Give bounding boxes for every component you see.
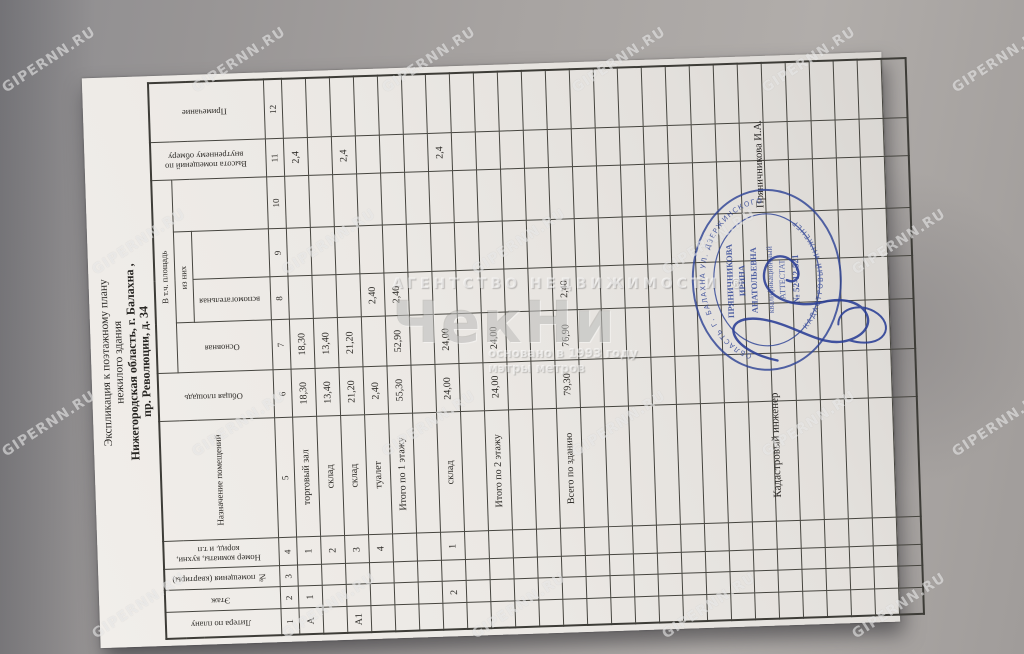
- table-cell: [800, 520, 825, 549]
- table-cell: [599, 266, 624, 310]
- table-cell: [715, 124, 740, 163]
- table-cell: [623, 265, 648, 309]
- table-cell: [561, 556, 586, 578]
- table-cell: [514, 601, 539, 628]
- table-cell: [562, 599, 587, 626]
- table-cell: [514, 579, 539, 602]
- column-number: 12: [263, 79, 283, 140]
- table-cell: [466, 580, 491, 603]
- table-cell: 18,30: [291, 369, 317, 418]
- table-cell: [407, 272, 432, 316]
- table-cell: [761, 62, 787, 123]
- table-cell: [825, 547, 850, 569]
- table-cell: [449, 72, 475, 133]
- table-cell: [752, 522, 777, 551]
- table-cell: [713, 64, 739, 125]
- table-cell: [801, 548, 826, 570]
- table-cell: 1: [440, 532, 465, 561]
- table-cell: [465, 559, 490, 581]
- column-number: 3: [279, 566, 298, 588]
- table-cell: [593, 68, 619, 129]
- table-cell: [776, 521, 801, 550]
- table-cell: [896, 517, 921, 546]
- table-cell: [370, 605, 395, 632]
- table-cell: [538, 578, 563, 601]
- table-cell: [334, 226, 360, 275]
- column-number: 2: [280, 587, 299, 610]
- table-cell: [778, 592, 803, 619]
- table-cell: [689, 64, 715, 125]
- table-cell: [530, 361, 556, 410]
- table-cell: 52,90: [385, 316, 411, 367]
- table-cell: [503, 269, 528, 313]
- table-cell: [785, 61, 811, 122]
- table-cell: [512, 530, 537, 559]
- table-cell: [497, 71, 523, 132]
- table-cell: [826, 590, 851, 617]
- table-cell: [658, 574, 683, 597]
- table-cell: А1: [346, 606, 371, 633]
- table-cell: [619, 127, 644, 166]
- table-cell: [824, 519, 849, 548]
- table-cell: [392, 534, 417, 563]
- table-cell: [431, 271, 456, 315]
- table-cell: [610, 575, 635, 598]
- table-cell: [297, 565, 322, 587]
- table-cell: [458, 363, 484, 412]
- table-cell: 21,20: [339, 367, 365, 416]
- table-cell: [454, 222, 480, 271]
- table-cell: [574, 218, 600, 267]
- table-cell: [529, 311, 555, 362]
- table-cell: [329, 76, 355, 137]
- table-cell: [379, 135, 404, 174]
- table-cell: [874, 589, 899, 616]
- table-cell: [665, 65, 691, 126]
- table-cell: [825, 568, 850, 591]
- table-cell: [609, 554, 634, 576]
- table-cell: [361, 317, 387, 368]
- table-cell: [850, 589, 875, 616]
- table-cell: 2: [320, 536, 345, 565]
- table-cell: [502, 221, 528, 270]
- table-cell: [729, 550, 754, 572]
- table-cell: [809, 60, 835, 121]
- background-shadow-left: [0, 0, 95, 654]
- table-cell: 24,00: [482, 362, 508, 411]
- header-col10-empty: [171, 177, 268, 232]
- table-cell: 24,00: [481, 313, 507, 364]
- table-cell: [873, 546, 898, 568]
- table-cell: [560, 528, 585, 557]
- table-cell: [897, 545, 922, 567]
- table-cell: [872, 518, 897, 547]
- table-cell: [489, 558, 514, 580]
- table-cell: [322, 607, 347, 634]
- table-cell: [643, 126, 668, 165]
- table-cell: [777, 570, 802, 593]
- table-cell: [322, 585, 347, 608]
- table-cell: [658, 596, 683, 623]
- table-cell: [393, 562, 418, 584]
- table-cell: [479, 270, 504, 314]
- table-cell: [377, 75, 403, 136]
- table-cell: 2,4: [331, 136, 356, 175]
- table-cell: [578, 359, 604, 408]
- table-cell: [753, 550, 778, 572]
- table-cell: [575, 266, 600, 310]
- table-cell: 24,00: [433, 314, 459, 365]
- table-cell: [287, 276, 312, 320]
- table-cell: [548, 167, 574, 220]
- table-cell: [457, 313, 483, 364]
- header-vysota: Высота помещений по внутреннему обмеру: [150, 139, 266, 181]
- column-number: 9: [268, 229, 288, 278]
- table-cell: [849, 567, 874, 590]
- table-cell: [586, 598, 611, 625]
- table-cell: 2,40: [383, 273, 408, 317]
- table-cell: [571, 128, 596, 167]
- table-cell: [729, 571, 754, 594]
- column-number: 1: [280, 609, 299, 636]
- table-cell: 21,20: [337, 317, 363, 368]
- table-cell: А: [298, 608, 323, 635]
- table-cell: 2,40: [363, 366, 389, 415]
- table-cell: [633, 554, 658, 576]
- table-cell: [311, 275, 336, 319]
- table-cell: [626, 358, 652, 407]
- table-cell: [513, 558, 538, 580]
- table-cell: [281, 78, 307, 139]
- table-cell: [380, 173, 406, 226]
- table-cell: [370, 583, 395, 606]
- table-cell: [584, 527, 609, 556]
- table-cell: 55,30: [386, 366, 412, 415]
- table-cell: [881, 58, 907, 119]
- table-cell: [562, 577, 587, 600]
- table-cell: [452, 170, 478, 223]
- table-cell: [499, 131, 524, 170]
- table-cell: [777, 549, 802, 571]
- table-cell: [353, 76, 379, 137]
- table-cell: [441, 560, 466, 582]
- header-osnovnaya: Основная: [176, 320, 273, 373]
- table-cell: 76,90: [553, 310, 579, 361]
- table-cell: [382, 225, 408, 274]
- table-cell: [406, 224, 432, 273]
- column-number: 8: [269, 277, 288, 321]
- table-cell: [284, 176, 310, 229]
- table-cell: [667, 125, 692, 164]
- table-cell: [305, 77, 331, 138]
- table-cell: [537, 557, 562, 579]
- table-cell: [369, 562, 394, 584]
- table-cell: [634, 575, 659, 598]
- table-cell: [476, 170, 502, 223]
- table-cell: [404, 172, 430, 225]
- table-cell: [526, 220, 552, 269]
- table-cell: [475, 132, 500, 171]
- table-cell: [466, 602, 491, 629]
- table-cell: [321, 564, 346, 586]
- table-cell: [754, 593, 779, 620]
- table-cell: [802, 591, 827, 618]
- table-cell: [787, 121, 812, 160]
- table-cell: [646, 216, 672, 265]
- table-cell: [490, 601, 515, 628]
- header-obshchaya: Общая площадь: [158, 370, 275, 422]
- table-cell: 4: [368, 534, 393, 563]
- table-cell: [569, 68, 595, 129]
- table-cell: 2: [442, 581, 467, 604]
- table-cell: [681, 552, 706, 574]
- table-cell: [401, 74, 427, 135]
- table-cell: [730, 593, 755, 620]
- table-cell: [488, 530, 513, 559]
- table-cell: [524, 168, 550, 221]
- table-cell: [418, 604, 443, 631]
- table-cell: [410, 365, 436, 414]
- table-cell: [859, 119, 884, 158]
- table-cell: [728, 522, 753, 551]
- table-cell: [307, 137, 332, 176]
- table-cell: [620, 165, 646, 218]
- header-primechanie: Примечание: [148, 79, 265, 143]
- table-cell: [682, 595, 707, 622]
- table-cell: [416, 533, 441, 562]
- table-cell: [506, 362, 532, 411]
- table-cell: [428, 171, 454, 224]
- table-cell: [418, 582, 443, 605]
- photo-of-document: Экспликация к поэтажному плану нежилого …: [0, 0, 1024, 654]
- table-cell: [451, 132, 476, 171]
- column-number: 10: [266, 177, 286, 230]
- table-cell: [598, 218, 624, 267]
- table-cell: [478, 222, 504, 271]
- table-cell: 79,30: [554, 360, 580, 409]
- table-cell: [505, 312, 531, 363]
- table-cell: 13,40: [315, 368, 341, 417]
- table-cell: [538, 600, 563, 627]
- table-cell: [892, 397, 920, 518]
- table-cell: [595, 128, 620, 167]
- table-cell: [500, 169, 526, 222]
- table-cell: [425, 73, 451, 134]
- table-cell: [680, 524, 705, 553]
- table-cell: [608, 526, 633, 555]
- table-cell: 2,4: [283, 138, 308, 177]
- table-cell: [602, 359, 628, 408]
- document-page: Экспликация к поэтажному плану нежилого …: [82, 52, 900, 648]
- table-cell: [345, 563, 370, 585]
- table-cell: [521, 70, 547, 131]
- column-number: 6: [273, 370, 293, 419]
- table-cell: [625, 308, 651, 359]
- table-cell: [536, 529, 561, 558]
- table-cell: [547, 129, 572, 168]
- table-cell: [835, 120, 860, 159]
- table-cell: [355, 136, 380, 175]
- signature-scribble: [694, 187, 901, 404]
- table-cell: [706, 572, 731, 595]
- table-cell: [356, 174, 382, 227]
- table-cell: [586, 576, 611, 599]
- table-cell: [430, 223, 456, 272]
- table-cell: [649, 307, 675, 358]
- table-cell: [417, 561, 442, 583]
- site-watermark-tile: GIPERNN.RU: [949, 24, 1024, 96]
- table-cell: [308, 175, 334, 228]
- table-cell: [394, 583, 419, 606]
- table-cell: [335, 274, 360, 318]
- table-cell: [706, 594, 731, 621]
- table-cell: 13,40: [313, 318, 339, 369]
- table-cell: [572, 166, 598, 219]
- table-cell: [898, 588, 923, 615]
- table-cell: 18,30: [289, 319, 315, 370]
- header-vspomogatelnaya: вспомогательная: [193, 277, 271, 323]
- table-cell: [873, 567, 898, 590]
- table-cell: [737, 63, 763, 124]
- table-cell: [617, 67, 643, 128]
- table-cell: [403, 134, 428, 173]
- table-cell: [657, 553, 682, 575]
- table-cell: 2,40: [359, 274, 384, 318]
- table-cell: [848, 518, 873, 547]
- table-cell: [849, 546, 874, 568]
- table-cell: [409, 315, 435, 366]
- table-cell: [811, 120, 836, 159]
- table-cell: [545, 69, 571, 130]
- table-cell: [310, 227, 336, 276]
- table-cell: [897, 566, 922, 589]
- table-cell: [286, 228, 312, 277]
- table-cell: [394, 605, 419, 632]
- header-litera: Литера по плану: [166, 609, 282, 639]
- table-cell: [585, 555, 610, 577]
- table-cell: [442, 603, 467, 630]
- table-cell: [632, 526, 657, 555]
- table-cell: [464, 531, 489, 560]
- table-cell: [527, 268, 552, 312]
- table-cell: [704, 523, 729, 552]
- table-cell: [358, 226, 384, 275]
- table-cell: 1: [296, 537, 321, 566]
- header-naznachenie: Назначение помещений: [159, 418, 278, 542]
- table-cell: 1: [298, 586, 323, 609]
- table-cell: [523, 130, 548, 169]
- header-col9-empty: [191, 229, 270, 280]
- table-cell: [833, 60, 859, 121]
- table-cell: [455, 270, 480, 314]
- table-cell: [610, 597, 635, 624]
- table-cell: [577, 309, 603, 360]
- table-cell: [644, 164, 670, 217]
- table-cell: [656, 525, 681, 554]
- table-cell: [550, 219, 576, 268]
- table-cell: [641, 66, 667, 127]
- table-cell: [622, 217, 648, 266]
- table-cell: [634, 597, 659, 624]
- table-cell: [705, 551, 730, 573]
- header-komnata: Номер комнаты, кухни, корид. и т.п: [163, 538, 279, 570]
- table-cell: [473, 72, 499, 133]
- table-cell: [490, 579, 515, 602]
- header-etazh: Этаж: [165, 587, 281, 613]
- column-number: 4: [278, 538, 297, 567]
- table-cell: [601, 309, 627, 360]
- table-cell: [647, 264, 672, 308]
- table-cell: [650, 357, 676, 406]
- column-number: 7: [271, 320, 291, 371]
- table-cell: [346, 584, 371, 607]
- table-cell: [857, 59, 883, 120]
- table-cell: 24,00: [434, 364, 460, 413]
- table-cell: 3: [344, 535, 369, 564]
- column-number: 11: [265, 139, 284, 178]
- header-pomeshchenie: № помещения (квартиры): [164, 566, 280, 591]
- table-cell: [753, 571, 778, 594]
- table-cell: [596, 166, 622, 219]
- table-cell: [763, 122, 788, 161]
- table-cell: 2,40: [551, 267, 576, 311]
- table-cell: [691, 124, 716, 163]
- table-cell: 2,4: [427, 133, 452, 172]
- table-cell: [883, 118, 909, 157]
- table-cell: [682, 573, 707, 596]
- table-cell: [801, 569, 826, 592]
- table-cell: [332, 174, 358, 227]
